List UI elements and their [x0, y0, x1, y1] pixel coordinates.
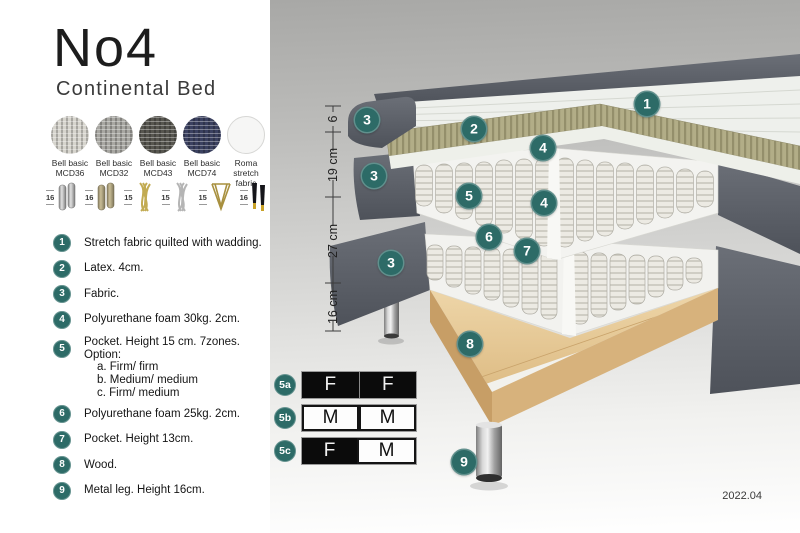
fabric-code: MCD74: [188, 168, 217, 178]
firmness-row-5a: 5a F F: [274, 371, 417, 399]
marker-wood: 8: [457, 331, 484, 358]
legend-text: Latex. 4cm.: [84, 262, 143, 275]
marker-latex: 2: [461, 116, 488, 143]
firmness-badge: 5a: [274, 374, 296, 396]
leg-height: 15: [199, 193, 207, 202]
firmness-row-5b: 5b M M: [274, 404, 417, 432]
fabric-code: MCD36: [56, 168, 85, 178]
fabric-code: MCD32: [100, 168, 129, 178]
firmness-cell: M: [302, 405, 359, 431]
firmness-cell: F: [359, 372, 417, 398]
legend-number-badge: 6: [53, 405, 71, 423]
fabric-texture-icon: [227, 116, 265, 154]
legend-number-badge: 9: [53, 482, 71, 500]
twisted-silver-leg-icon: [172, 182, 192, 212]
leg-option-twisted-silver: 15: [161, 182, 191, 212]
fabric-name: Bell basic: [52, 158, 88, 168]
legend-text: Fabric.: [84, 288, 119, 301]
firmness-cell: F: [302, 372, 359, 398]
leg-height: 15: [124, 193, 132, 202]
fabric-texture-icon: [183, 116, 221, 154]
leg-option-cylinder-brass: 16: [85, 182, 117, 212]
firmness-badge: 5c: [274, 440, 296, 462]
marker-foam-25: 6: [476, 224, 503, 251]
legend-text: Pocket. Height 15 cm. 7zones. Option:: [84, 336, 267, 362]
pocket-options: a. Firm/ firm b. Medium/ medium c. Firm/…: [97, 361, 267, 400]
page-title: No4: [53, 20, 158, 76]
legend-text: Polyurethane foam 30kg. 2cm.: [84, 313, 240, 326]
marker-fabric-base: 3: [378, 250, 405, 277]
dimension-label-topper: 6: [326, 115, 340, 122]
dimension-label-middle: 19 cm: [326, 148, 340, 182]
firmness-cell: M: [357, 438, 416, 464]
base-side-fabric-left: [330, 222, 430, 326]
legend-item-2: 2 Latex. 4cm.: [53, 260, 267, 278]
legend-text: Stretch fabric quilted with wadding.: [84, 237, 262, 250]
twisted-gold-leg-icon: [135, 182, 155, 212]
legend-number-badge: 8: [53, 456, 71, 474]
fabric-texture-icon: [139, 116, 177, 154]
leg-height: 15: [161, 193, 169, 202]
marker-foam-lower: 4: [531, 190, 558, 217]
fabric-swatch-mcd36: Bell basicMCD36: [49, 116, 91, 188]
firmness-cell: M: [359, 405, 416, 431]
base-side-fabric-right: [710, 246, 800, 394]
version-stamp: 2022.04: [722, 490, 762, 502]
legend-text: Pocket. Height 13cm.: [84, 433, 193, 446]
fabric-name: Bell basic: [96, 158, 132, 168]
marker-pocket-15: 5: [456, 183, 483, 210]
cylinder-silver-leg-icon: [56, 182, 78, 212]
fabric-texture-icon: [51, 116, 89, 154]
front-metal-leg: [476, 424, 502, 478]
leg-option-cylinder-silver: 16: [46, 182, 78, 212]
fabric-texture-icon: [95, 116, 133, 154]
legend-item-8: 8 Wood.: [53, 456, 267, 474]
marker-fabric-top: 3: [354, 107, 381, 134]
legend-text: Wood.: [84, 459, 117, 472]
fabric-swatch-row: Bell basicMCD36 Bell basicMCD32 Bell bas…: [49, 116, 267, 188]
marker-pocket-13: 7: [514, 238, 541, 265]
pocket-option-b: b. Medium/ medium: [97, 374, 267, 387]
fabric-name: Bell basic: [140, 158, 176, 168]
legend-text: Metal leg. Height 16cm.: [84, 484, 205, 497]
layer-legend: 1 Stretch fabric quilted with wadding. 2…: [53, 234, 267, 507]
cylinder-brass-leg-icon: [95, 182, 117, 212]
firmness-cell: F: [302, 438, 357, 464]
fabric-name: Roma: [235, 158, 258, 168]
legend-item-1: 1 Stretch fabric quilted with wadding.: [53, 234, 267, 252]
legend-number-badge: 4: [53, 311, 71, 329]
leg-option-tapered-black-gold: 16: [240, 182, 268, 212]
legend-item-9: 9 Metal leg. Height 16cm.: [53, 482, 267, 500]
leg-option-twisted-gold: 15: [124, 182, 154, 212]
marker-foam-upper: 4: [530, 135, 557, 162]
hairpin-leg-icon: [209, 182, 233, 212]
legend-item-7: 7 Pocket. Height 13cm.: [53, 431, 267, 449]
legend-number-badge: 7: [53, 431, 71, 449]
legend-number-badge: 1: [53, 234, 71, 252]
fabric-swatch-roma: Romastretch fabric: [225, 116, 267, 188]
fabric-name: Bell basic: [184, 158, 220, 168]
leg-height: 16: [240, 193, 248, 202]
bed-diagram-panel: 6 19 cm 27 cm 16 cm 1 2 3 4 3 5 4 6 7 3 …: [270, 0, 800, 533]
fabric-code: MCD43: [144, 168, 173, 178]
legend-item-3: 3 Fabric.: [53, 285, 267, 303]
spec-panel: No4 Continental Bed Bell basicMCD36 Bell…: [0, 0, 270, 533]
fabric-swatch-mcd74: Bell basicMCD74: [181, 116, 223, 188]
firmness-row-5c: 5c F M: [274, 437, 417, 465]
firmness-bar: M M: [301, 404, 417, 432]
leg-options-row: 16 16 15 15: [46, 182, 268, 212]
marker-metal-leg: 9: [451, 449, 478, 476]
pocket-option-a: a. Firm/ firm: [97, 361, 267, 374]
legend-item-6: 6 Polyurethane foam 25kg. 2cm.: [53, 405, 267, 423]
firmness-bar: F M: [301, 437, 417, 465]
legend-number-badge: 2: [53, 260, 71, 278]
fabric-swatch-mcd43: Bell basicMCD43: [137, 116, 179, 188]
legend-text: Polyurethane foam 25kg. 2cm.: [84, 408, 240, 421]
leg-height: 16: [85, 193, 93, 202]
marker-fabric-middle: 3: [361, 163, 388, 190]
marker-quilt-top: 1: [634, 91, 661, 118]
page-subtitle: Continental Bed: [56, 78, 216, 101]
dimension-label-base: 27 cm: [326, 224, 340, 258]
legend-item-5: 5 Pocket. Height 15 cm. 7zones. Option:: [53, 336, 267, 362]
leg-height: 16: [46, 193, 54, 202]
legend-number-badge: 3: [53, 285, 71, 303]
dimension-label-leg: 16 cm: [326, 290, 340, 324]
firmness-badge: 5b: [274, 407, 296, 429]
leg-option-hairpin-gold: 15: [199, 182, 233, 212]
fabric-swatch-mcd32: Bell basicMCD32: [93, 116, 135, 188]
tapered-black-gold-leg-icon: [250, 182, 268, 212]
legend-number-badge: 5: [53, 340, 71, 358]
pocket-option-c: c. Firm/ medium: [97, 387, 267, 400]
legend-item-4: 4 Polyurethane foam 30kg. 2cm.: [53, 311, 267, 329]
firmness-bar: F F: [301, 371, 417, 399]
